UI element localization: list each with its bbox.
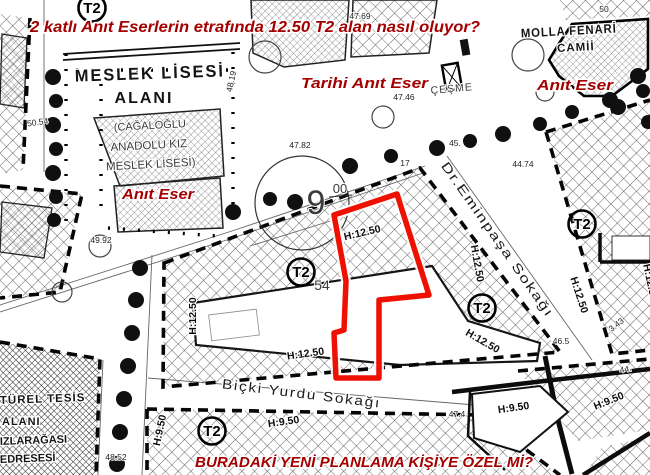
zone-t2-right-label: T2 [573,216,591,233]
tree-icon [45,165,61,181]
elev-46-5: 46.5 [553,336,570,346]
tree-canopy-icon [512,39,544,71]
tree-icon [429,140,445,156]
height-h1250-left: H:12.50 [187,297,199,335]
annotation-top-question: 2 katlı Anıt Eserlerin etrafında 12.50 T… [29,19,480,36]
height-h1250-right-block: H:12.50 [567,275,590,314]
tree-icon [47,213,61,227]
label-camii: CAMİİ [557,40,595,55]
tree-icon [116,391,132,407]
tree-icon [342,158,358,174]
tree-icon [225,204,241,220]
zone-t2-bottom-label: T2 [203,423,221,440]
tree-icon [132,260,148,276]
annotation-tarihi-anit-eser: Tarihi Anıt Eser [301,75,429,92]
building-center-annex [209,309,260,341]
tree-icon [112,424,128,440]
road-width-big: 9 [307,184,326,222]
tree-icon [287,194,303,210]
zoning-map: 900 T2T2T2T2T2 MESLEK LİSESİALANI(CAĞALO… [0,0,650,475]
tree-icon [533,117,547,131]
elev-17: 17 [400,158,410,168]
tree-icon [49,190,63,204]
elev-48-52: 48.52 [105,452,127,462]
tree-icon [610,99,626,115]
zoning-map-viewer: 900 T2T2T2T2T2 MESLEK LİSESİALANI(CAĞALO… [0,0,650,475]
elev-48-19: 48.19 [224,70,238,93]
zone-t2-center-right-label: T2 [473,300,491,317]
tree-icon [565,105,579,119]
block-right [546,100,650,354]
label-alani: ALANI [115,90,174,107]
building-right-block-court [612,236,650,260]
tree-icon [636,84,650,98]
tree-icon [263,192,277,206]
building-topleft [0,34,27,108]
tree-icon [495,126,511,142]
zone-t2-center-left-label: T2 [292,264,310,281]
tree-icon [49,142,63,156]
elev-44: 44. [619,363,632,375]
elev-47-82: 47.82 [289,140,311,150]
tree-icon [120,358,136,374]
annotation-bottom-question: BURADAKİ YENİ PLANLAMA KİŞİYE ÖZEL Mİ? [195,454,533,471]
label-medresesi: EDRESESİ [0,451,56,466]
label-kizlaragasi: IZLARAĞASI [0,433,67,448]
tree-canopy-icon [372,106,394,128]
zone-t2-topleft-label: T2 [83,0,101,17]
annotation-anit-eser-right: Anıt Eser [536,77,614,94]
road-width-small: 00 [333,181,347,196]
tree-icon [45,69,61,85]
label-parcel-54: 54 [314,277,330,293]
elev-47-4: 47.4 [449,409,466,419]
elev-45: 45. [449,138,461,148]
tree-icon [630,68,646,84]
elev-47-46: 47.46 [393,92,415,102]
tree-icon [124,325,140,341]
tree-icon [128,292,144,308]
label-tesis-alani: ALANI [2,416,41,428]
annotation-anit-eser-left: Anıt Eser [121,186,195,203]
label-meslek-lisesi: MESLEK LİSESİ [75,61,226,85]
elev-49-92: 49.92 [90,235,112,245]
elev-50: 50 [599,4,609,14]
tree-icon [384,149,398,163]
label-cesme: ÇEŞME [430,81,473,97]
building-leftmid [0,202,52,258]
elev-44-74: 44.74 [512,159,534,169]
tree-icon [463,134,477,148]
tree-icon [49,94,63,108]
